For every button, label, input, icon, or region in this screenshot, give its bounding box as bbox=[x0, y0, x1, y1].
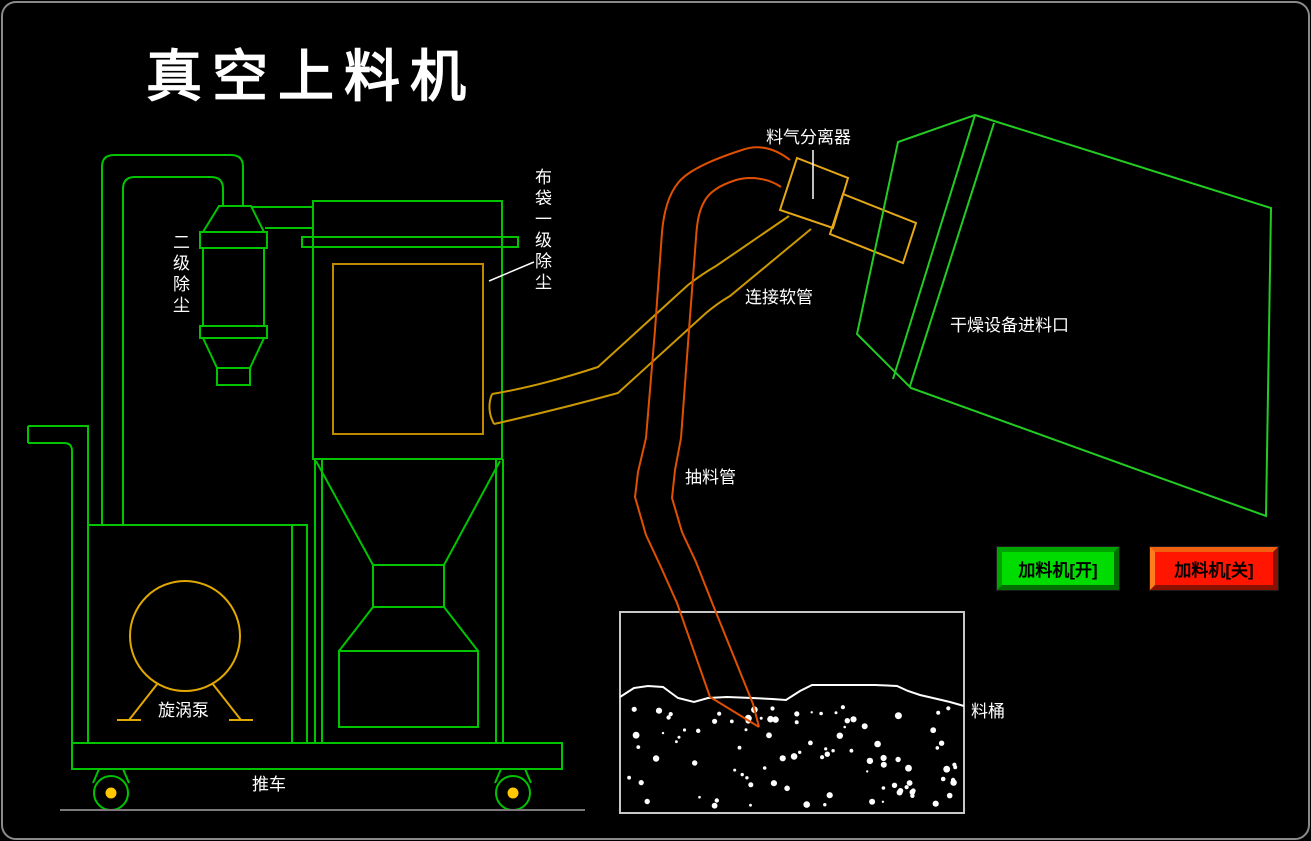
cart bbox=[60, 743, 585, 810]
material-barrel bbox=[620, 612, 964, 813]
hmi-screen: 真空上料机 料气分离器 布袋一级除尘 二级除尘 连接软管 干燥设备进料口 抽料管… bbox=[0, 0, 1311, 841]
vacuum-pipe-left bbox=[102, 155, 243, 525]
bag-filter-unit bbox=[302, 201, 518, 743]
label-hose: 连接软管 bbox=[745, 288, 813, 308]
label-bag-filter-primary: 布袋一级除尘 bbox=[531, 168, 551, 294]
label-separator: 料气分离器 bbox=[766, 128, 851, 148]
label-dryer-inlet: 干燥设备进料口 bbox=[950, 316, 1069, 336]
label-suction-pipe: 抽料管 bbox=[685, 468, 736, 488]
suction-pipe bbox=[635, 147, 790, 727]
discharge-tube bbox=[830, 194, 916, 263]
vortex-pump bbox=[117, 581, 253, 720]
material-surface bbox=[620, 685, 964, 706]
wheel-hub bbox=[106, 788, 117, 799]
secondary-dust-collector bbox=[200, 206, 313, 385]
material-particles bbox=[627, 705, 957, 808]
material-gas-separator bbox=[780, 158, 916, 263]
label-vortex-pump: 旋涡泵 bbox=[158, 701, 209, 721]
feeder-on-button[interactable]: 加料机[开] bbox=[997, 547, 1119, 590]
page-title: 真空上料机 bbox=[146, 32, 476, 113]
leader-line-bag-filter bbox=[489, 262, 534, 281]
wheel-hub bbox=[508, 788, 519, 799]
label-secondary-dust: 二级除尘 bbox=[169, 233, 189, 317]
bag-filter-window bbox=[333, 264, 483, 434]
label-material-barrel: 料桶 bbox=[971, 702, 1005, 722]
cart-handle bbox=[28, 426, 88, 743]
feeder-off-button[interactable]: 加料机[关] bbox=[1150, 547, 1278, 590]
label-cart: 推车 bbox=[252, 775, 286, 795]
